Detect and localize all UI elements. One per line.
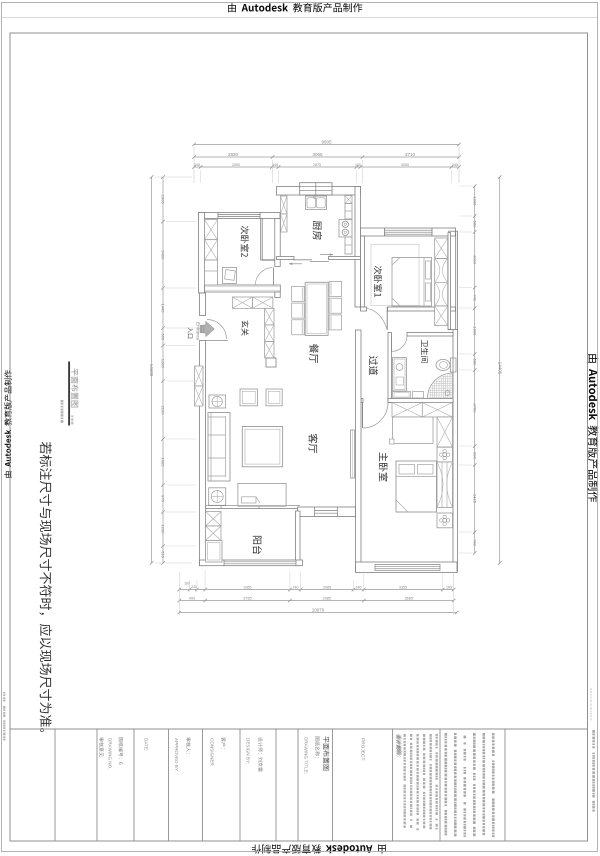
svg-text:2590: 2590 [232,163,240,167]
svg-text:400: 400 [189,596,195,600]
svg-text:3355: 3355 [399,585,407,589]
svg-text:2400: 2400 [161,250,166,260]
svg-text:3665: 3665 [404,596,412,600]
svg-text:CONSIGNER: CONSIGNER [210,738,215,767]
svg-text:3065: 3065 [312,152,323,157]
svg-text:580: 580 [472,359,477,366]
svg-text:2875: 2875 [313,163,321,167]
svg-text:2085: 2085 [323,596,331,600]
svg-text:1665: 1665 [161,458,166,468]
svg-text:245: 245 [452,163,458,167]
svg-text:1665: 1665 [472,327,477,337]
svg-text:DRAWING TITLE:: DRAWING TITLE: [304,737,309,774]
svg-text:635: 635 [161,333,166,340]
svg-text:240: 240 [191,585,197,589]
svg-text:1230: 1230 [161,525,166,535]
svg-text:2425: 2425 [472,494,477,504]
svg-text:240: 240 [293,585,299,589]
svg-text:615: 615 [161,551,166,558]
svg-text:APPROVED BY: APPROVED BY [174,738,179,771]
svg-text:1445: 1445 [161,304,166,314]
svg-text:PROJECT:: PROJECT: [360,738,366,761]
svg-text:2750: 2750 [472,404,477,414]
svg-text:3065: 3065 [401,163,409,167]
svg-text:100: 100 [355,163,361,167]
svg-text:245: 245 [194,163,200,167]
svg-text:975: 975 [161,495,166,502]
svg-text:760: 760 [472,539,477,546]
svg-text:1085: 1085 [472,197,477,207]
svg-text:2830: 2830 [228,152,239,157]
svg-text:1285: 1285 [161,359,166,369]
svg-text:10070: 10070 [312,607,325,612]
svg-text:740: 740 [472,294,477,301]
svg-text:DESIGN BY:: DESIGN BY: [246,738,251,764]
svg-text:690: 690 [472,452,477,459]
svg-text:3710: 3710 [405,152,416,157]
svg-text:3365: 3365 [244,585,252,589]
svg-text:9605: 9605 [321,139,332,144]
svg-text:240: 240 [356,585,362,589]
svg-text:14495: 14495 [497,362,502,375]
svg-text:14685: 14685 [149,364,154,377]
svg-text:2010: 2010 [472,255,477,265]
svg-text:3785: 3785 [243,596,251,600]
svg-text:2085: 2085 [323,585,331,589]
svg-text:2100: 2100 [161,406,166,416]
svg-text:Entrance: Entrance [196,322,201,341]
svg-text:DRAWING NO.: DRAWING NO. [108,738,113,769]
svg-text:1605: 1605 [161,195,166,205]
svg-text:580: 580 [472,221,477,228]
svg-text:245: 245 [272,163,278,167]
svg-text:DATE:: DATE: [144,738,149,751]
svg-text:180: 180 [184,582,190,586]
svg-text:165: 165 [446,585,452,589]
